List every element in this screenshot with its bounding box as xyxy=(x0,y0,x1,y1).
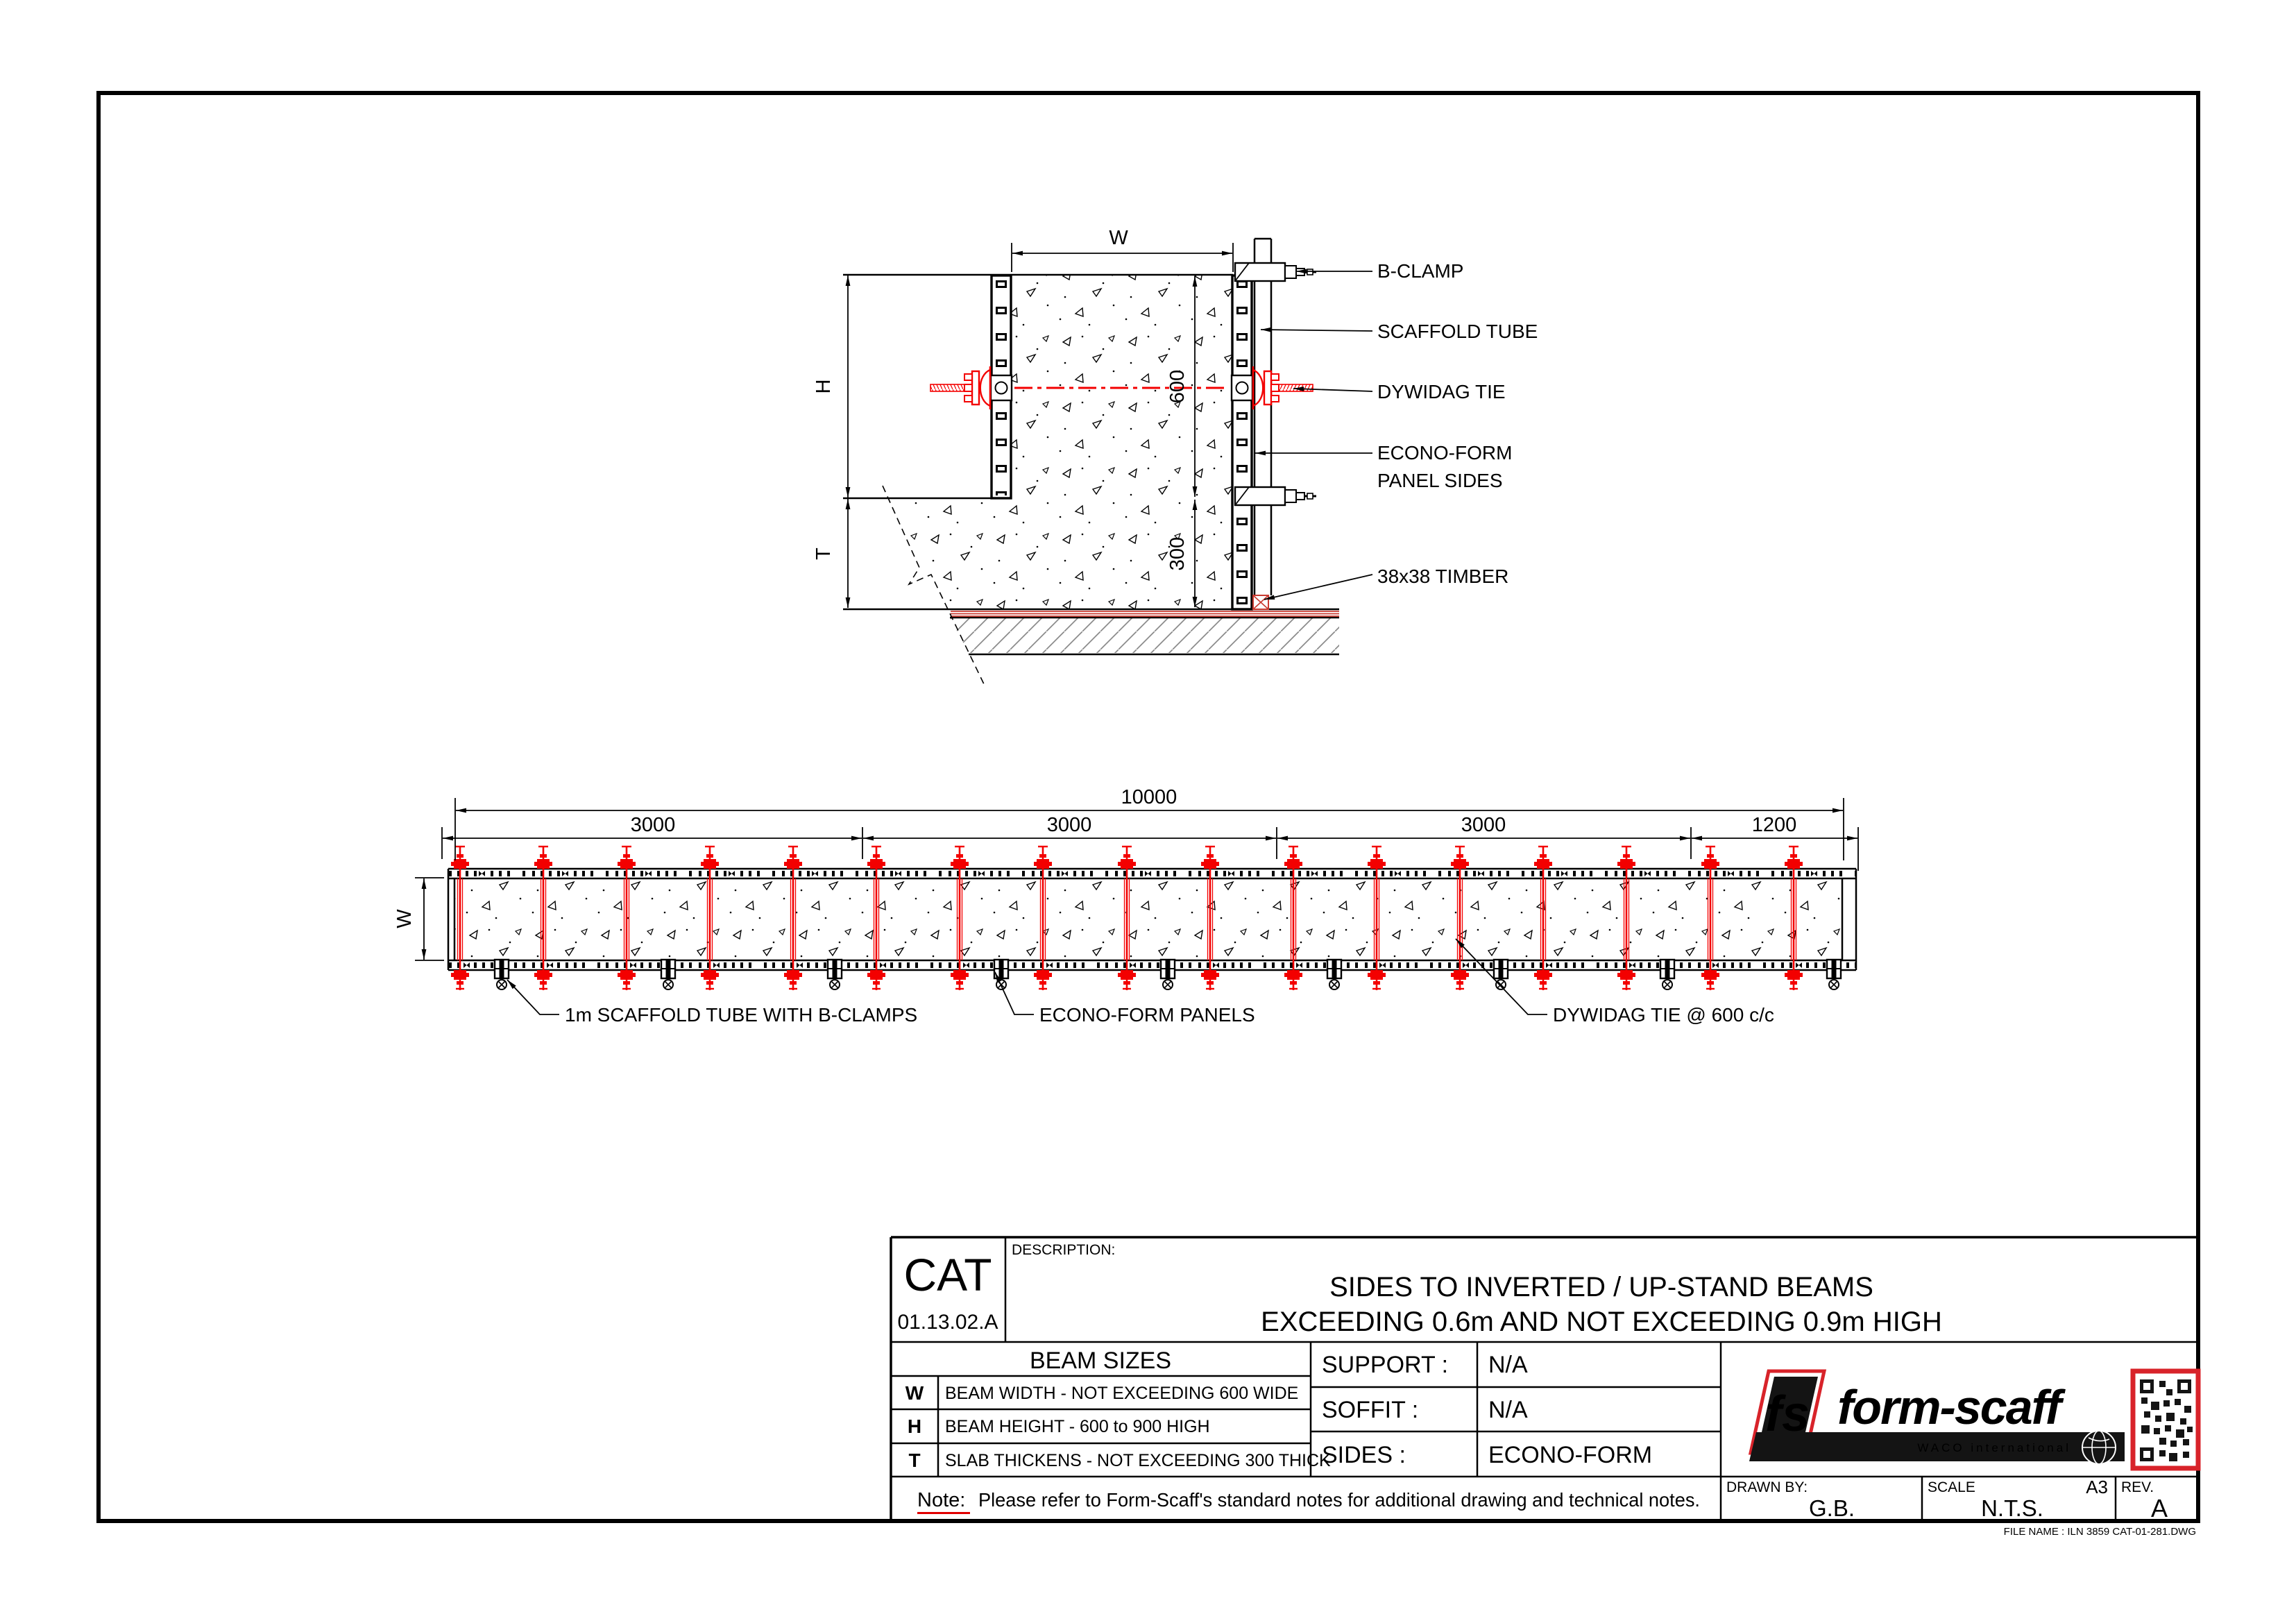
spec-value-sides: ECONO-FORM xyxy=(1488,1442,1652,1468)
panel-rail-bottom xyxy=(448,960,1856,970)
beam-row-key-t: T xyxy=(908,1450,920,1471)
panel-rail-top xyxy=(448,869,1856,878)
scaffold-tube xyxy=(1255,239,1271,595)
beam-row-desc-t: SLAB THICKENS - NOT EXCEEDING 300 THICK xyxy=(945,1451,1331,1470)
spec-label-soffit: SOFFIT : xyxy=(1322,1397,1418,1423)
label-scaffold-tube: SCAFFOLD TUBE xyxy=(1377,321,1538,342)
logo-wordmark: form-scaff xyxy=(1837,1380,2066,1434)
paper-size: A3 xyxy=(2086,1477,2108,1497)
clamp-mark xyxy=(495,960,509,989)
drawn-by-label: DRAWN BY: xyxy=(1726,1479,1808,1495)
label-econoform-2: PANEL SIDES xyxy=(1377,470,1503,491)
clamp-mark xyxy=(1161,960,1175,989)
clamp-mark xyxy=(828,960,842,989)
drawing-sheet: W H T 600 300 B-CLAMP SCAFFOLD TUBE DYWI… xyxy=(0,0,2296,1623)
dim-10000: 10000 xyxy=(1121,786,1177,808)
dim-w-plan: W xyxy=(393,909,416,928)
dim-h: H xyxy=(813,380,835,394)
dim-300: 300 xyxy=(1166,537,1189,570)
beam-row-desc-w: BEAM WIDTH - NOT EXCEEDING 600 WIDE xyxy=(945,1384,1298,1403)
label-econoform-panels: ECONO-FORM PANELS xyxy=(1039,1004,1255,1026)
clamp-mark xyxy=(1494,960,1508,989)
beam-row-desc-h: BEAM HEIGHT - 600 to 900 HIGH xyxy=(945,1417,1210,1436)
timber-38x38 xyxy=(1253,595,1268,609)
drawing-canvas: W H T 600 300 B-CLAMP SCAFFOLD TUBE DYWI… xyxy=(0,0,2296,1623)
econoform-panel-right xyxy=(1232,275,1252,609)
dim-3000-a: 3000 xyxy=(631,814,676,836)
drawing-title-line2: EXCEEDING 0.6m AND NOT EXCEEDING 0.9m HI… xyxy=(1261,1307,1942,1337)
section-callouts: B-CLAMP SCAFFOLD TUBE DYWIDAG TIE ECONO-… xyxy=(1255,260,1538,600)
label-b-clamp: B-CLAMP xyxy=(1377,260,1463,282)
label-ties-600: DYWIDAG TIE @ 600 c/c xyxy=(1553,1004,1774,1026)
beam-sizes-header: BEAM SIZES xyxy=(1030,1348,1171,1374)
qr-code xyxy=(2133,1371,2198,1468)
clamp-mark xyxy=(1327,960,1341,989)
dim-3000-c: 3000 xyxy=(1461,814,1506,836)
spec-value-soffit: N/A xyxy=(1488,1397,1528,1423)
spec-value-support: N/A xyxy=(1488,1352,1528,1378)
file-name: FILE NAME : ILN 3859 CAT-01-281.DWG xyxy=(2004,1526,2196,1538)
title-block: CAT 01.13.02.A DESCRIPTION: SIDES TO INV… xyxy=(891,1237,2198,1522)
concrete-beam-plan xyxy=(454,878,1842,960)
cat-code: CAT xyxy=(903,1249,992,1300)
dim-600: 600 xyxy=(1166,370,1189,403)
description-label: DESCRIPTION: xyxy=(1012,1242,1115,1258)
drawn-by-value: G.B. xyxy=(1809,1495,1855,1521)
clamp-mark xyxy=(1827,960,1841,989)
note-label: Note: xyxy=(917,1489,965,1511)
b-clamp-bottom xyxy=(1235,487,1316,505)
dim-1200: 1200 xyxy=(1752,814,1797,836)
note-text: Please refer to Form-Scaff's standard no… xyxy=(978,1489,1700,1511)
globe-icon xyxy=(2082,1431,2116,1464)
clamp-mark xyxy=(1660,960,1674,989)
label-timber: 38x38 TIMBER xyxy=(1377,566,1508,587)
spec-label-sides: SIDES : xyxy=(1322,1442,1406,1468)
dim-w-section: W xyxy=(1109,227,1128,249)
rev-value: A xyxy=(2151,1494,2168,1522)
clamp-mark xyxy=(661,960,675,989)
form-scaff-logo: fs form-scaff WACO international xyxy=(1749,1371,2198,1468)
ground-slab-hatch xyxy=(950,618,1339,653)
scale-value: N.T.S. xyxy=(1981,1495,2043,1521)
label-scaffold-tube-clamps: 1m SCAFFOLD TUBE WITH B-CLAMPS xyxy=(565,1004,917,1026)
drawing-title-line1: SIDES TO INVERTED / UP-STAND BEAMS xyxy=(1329,1272,1873,1302)
spec-label-support: SUPPORT : xyxy=(1322,1352,1448,1378)
label-dywidag-tie: DYWIDAG TIE xyxy=(1377,381,1506,402)
rev-label: REV. xyxy=(2121,1479,2154,1495)
dim-3000-b: 3000 xyxy=(1047,814,1092,836)
logo-tagline: WACO international xyxy=(1917,1441,2071,1454)
cat-number: 01.13.02.A xyxy=(897,1311,998,1334)
b-clamp-top xyxy=(1235,263,1316,281)
mudsill-lines xyxy=(951,611,1339,616)
scale-label: SCALE xyxy=(1928,1479,1975,1495)
beam-row-key-w: W xyxy=(905,1382,924,1404)
note-underline xyxy=(917,1512,970,1514)
dim-t: T xyxy=(813,547,835,560)
section-view: W H T 600 300 B-CLAMP SCAFFOLD TUBE DYWI… xyxy=(813,227,1538,687)
beam-row-key-h: H xyxy=(908,1416,921,1437)
label-econoform-1: ECONO-FORM xyxy=(1377,442,1512,464)
plan-view: 10000 3000 3000 3000 1200 W 1m SCAFFOLD … xyxy=(393,786,1858,1026)
